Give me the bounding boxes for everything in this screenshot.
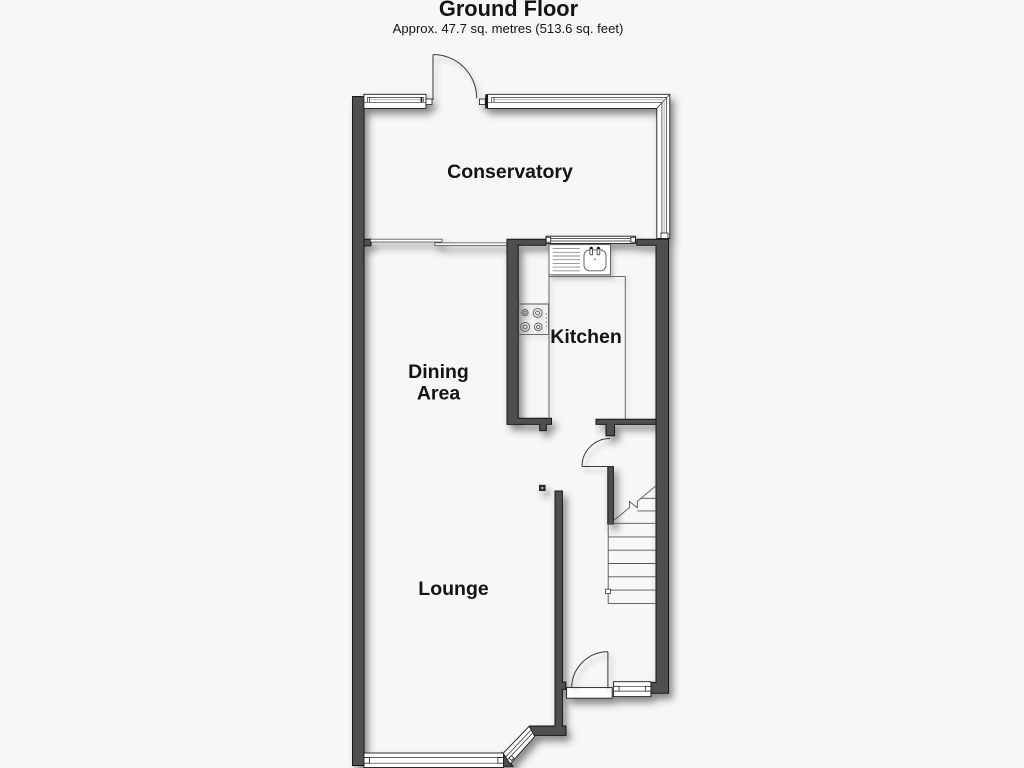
svg-text:Lounge: Lounge	[418, 578, 489, 600]
svg-text:Ground Floor: Ground Floor	[439, 0, 579, 21]
svg-text:Conservatory: Conservatory	[447, 161, 573, 183]
svg-text:Kitchen: Kitchen	[550, 326, 622, 348]
svg-text:Dining: Dining	[408, 361, 469, 383]
svg-text:Approx. 47.7 sq. metres (513.6: Approx. 47.7 sq. metres (513.6 sq. feet)	[393, 21, 624, 36]
svg-text:Area: Area	[417, 383, 461, 405]
